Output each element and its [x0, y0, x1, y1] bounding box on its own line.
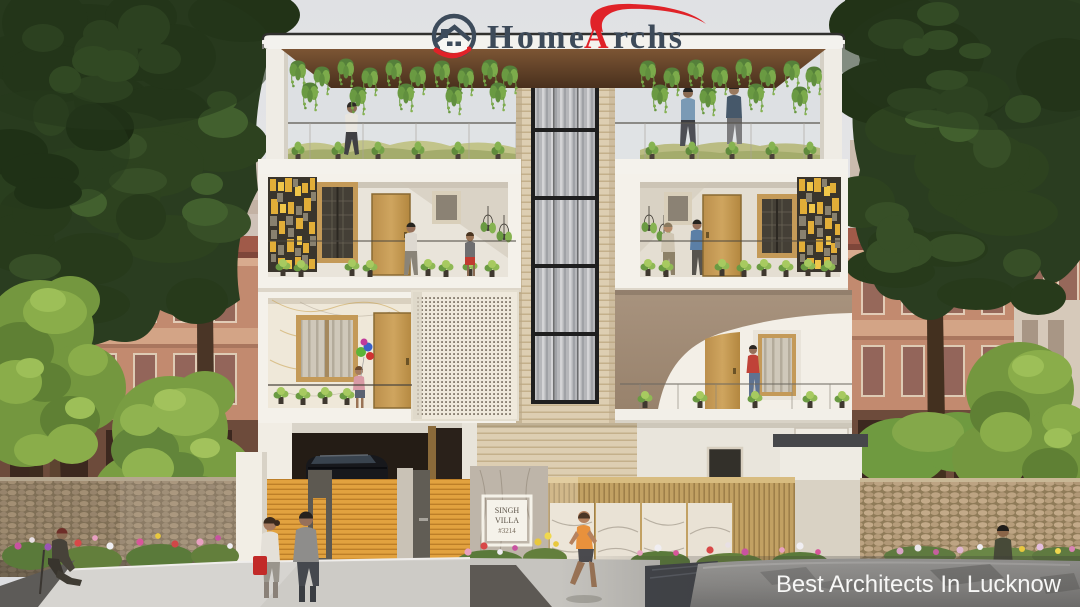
svg-text:Best Architects In Lucknow: Best Architects In Lucknow [776, 571, 1062, 598]
svg-text:SINGH: SINGH [495, 506, 520, 515]
svg-text:VILLA: VILLA [495, 516, 519, 525]
svg-text:#3214: #3214 [498, 527, 516, 535]
svg-text:rchs: rchs [613, 19, 682, 56]
